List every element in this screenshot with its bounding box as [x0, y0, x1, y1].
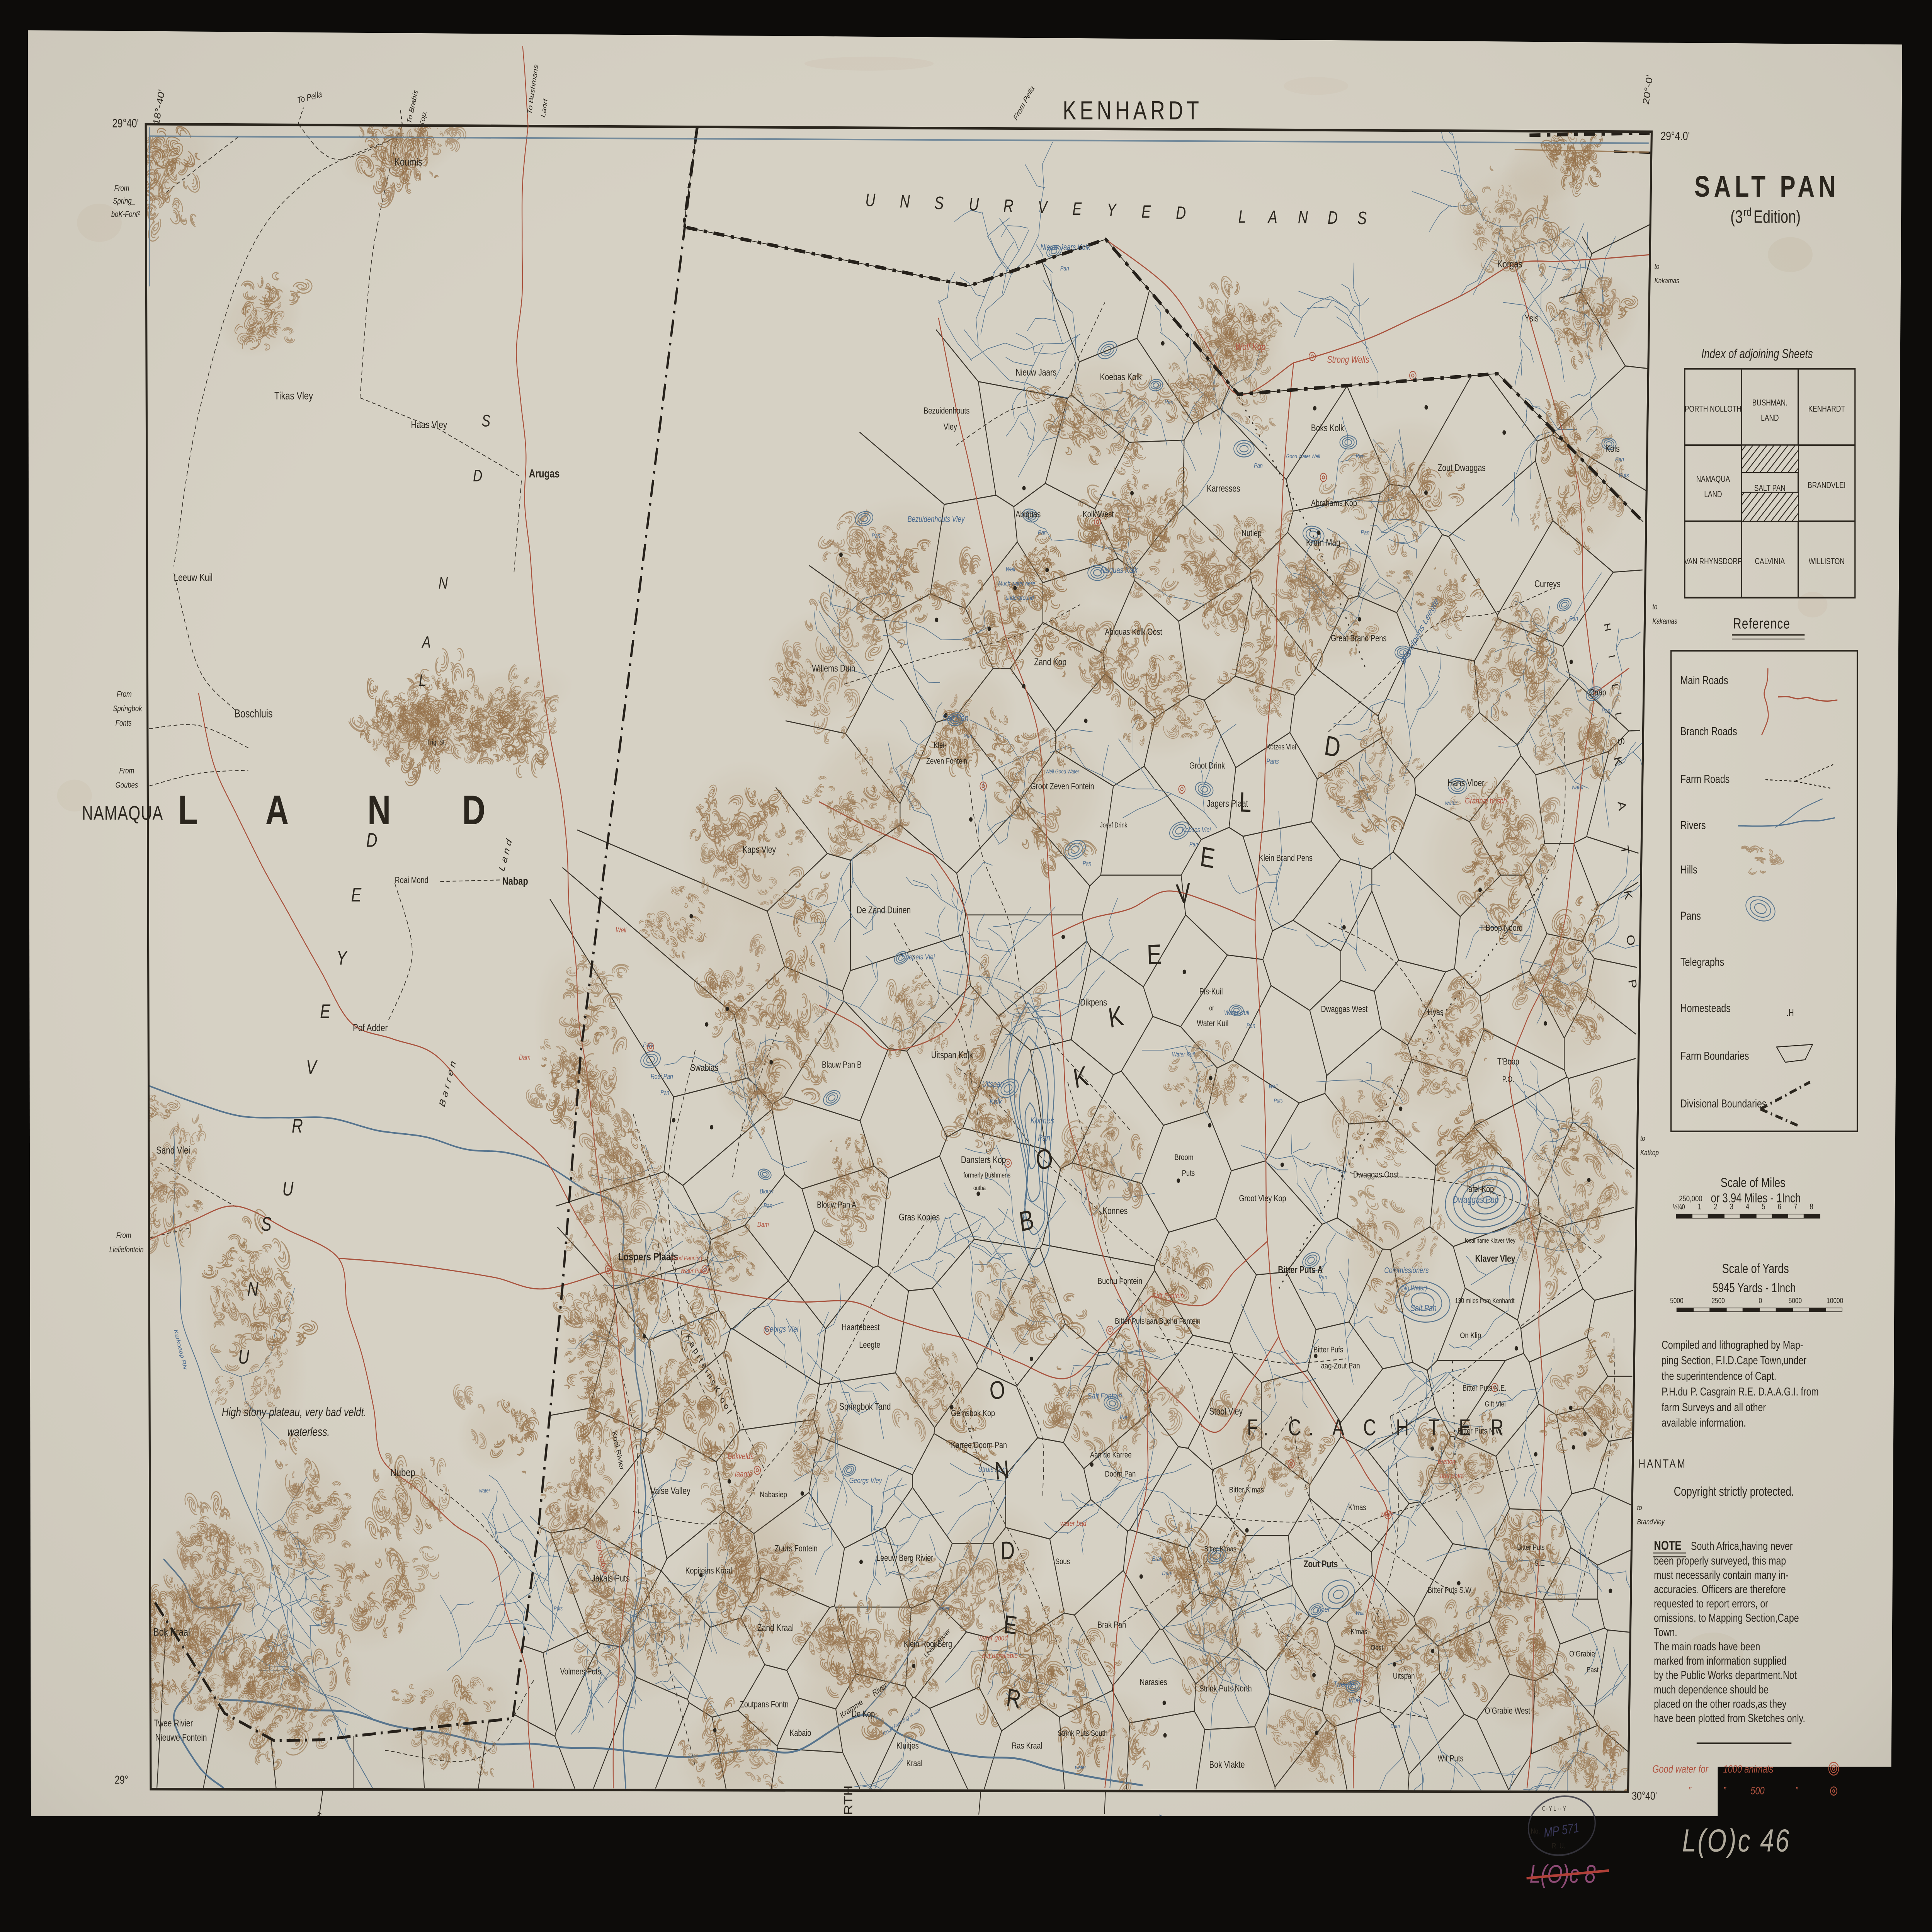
svg-text:From: From: [119, 766, 134, 775]
svg-text:much dependence should be: much dependence should be: [1654, 1683, 1769, 1696]
svg-text:E: E: [351, 884, 362, 906]
svg-text:Salt Pan: Salt Pan: [942, 713, 969, 723]
svg-text:Ysis: Ysis: [1525, 313, 1539, 324]
svg-text:to: to: [1655, 262, 1660, 270]
svg-text:D: D: [1000, 1536, 1015, 1565]
svg-text:D: D: [462, 787, 485, 833]
svg-text:Karree Doorn Pan: Karree Doorn Pan: [951, 1440, 1007, 1450]
svg-text:L: L: [1238, 207, 1246, 226]
svg-text:Bitter Puts N.E.: Bitter Puts N.E.: [1463, 1384, 1507, 1393]
svg-text:29°4.0': 29°4.0': [1661, 129, 1690, 143]
svg-text:Pan: Pan: [764, 1202, 772, 1209]
svg-text:the superintendence of Capt.: the superintendence of Capt.: [1662, 1369, 1776, 1382]
svg-text:Strink Puts North: Strink Puts North: [1199, 1684, 1252, 1694]
svg-text:HANTAM: HANTAM: [1638, 1457, 1686, 1471]
svg-text:Boks Kolk: Boks Kolk: [1311, 423, 1344, 434]
svg-text:oan be travelled over in a car: oan be travelled over in a cart: [1181, 1870, 1293, 1882]
svg-text:LAND: LAND: [1704, 490, 1722, 500]
svg-text:Onap: Onap: [1589, 687, 1606, 697]
svg-text:F. C. NORTH: F. C. NORTH: [842, 1785, 855, 1871]
svg-text:Wolf Kop: Wolf Kop: [1235, 342, 1265, 352]
svg-text:Sous: Sous: [1055, 1557, 1070, 1566]
svg-text:Pan: Pan: [1120, 1414, 1129, 1421]
svg-text:BRANDVLEI: BRANDVLEI: [1808, 481, 1845, 490]
svg-text:Vley: Vley: [944, 422, 957, 432]
svg-text:en: en: [968, 1426, 975, 1434]
svg-text:Springbok Tand: Springbok Tand: [839, 1401, 891, 1412]
svg-text:Rivers: Rivers: [1680, 819, 1706, 832]
svg-text:Kraal: Kraal: [906, 1759, 922, 1769]
svg-text:K’mas: K’mas: [1351, 1627, 1367, 1636]
svg-text:Pan: Pan: [1060, 265, 1069, 272]
svg-text:5: 5: [1762, 1202, 1765, 1211]
svg-text:water: water: [479, 1487, 490, 1494]
svg-text:N: N: [439, 574, 448, 593]
svg-text:Zand Kop: Zand Kop: [1034, 656, 1066, 667]
svg-text:E: E: [320, 1000, 330, 1022]
svg-text:U: U: [238, 1346, 250, 1368]
svg-text:5000: 5000: [1670, 1296, 1683, 1305]
svg-text:Oost: Oost: [1371, 1643, 1383, 1651]
svg-text:D: D: [473, 466, 482, 485]
svg-text:Dwaggas West: Dwaggas West: [1321, 1004, 1368, 1014]
svg-text:E: E: [1141, 202, 1151, 221]
svg-text:KENHARDT: KENHARDT: [1063, 96, 1202, 125]
svg-text:Bitter Puts: Bitter Puts: [1517, 1543, 1544, 1551]
svg-text:130 miles from Kenhardt: 130 miles from Kenhardt: [1455, 1297, 1515, 1305]
svg-text:1000 animals: 1000 animals: [1723, 1763, 1774, 1775]
svg-text:Fonts: Fonts: [116, 719, 132, 728]
svg-text:Kabaio: Kabaio: [789, 1728, 811, 1738]
svg-text:S: S: [482, 412, 491, 430]
svg-text:Jakals Puts: Jakals Puts: [592, 1573, 629, 1584]
svg-text:Nutiep: Nutiep: [1242, 529, 1262, 539]
svg-text:or 3.94 Miles - 1Inch: or 3.94 Miles - 1Inch: [1711, 1191, 1801, 1206]
svg-text:SALT PAN: SALT PAN: [1754, 484, 1786, 493]
svg-text:2: 2: [1714, 1202, 1717, 1211]
svg-text:T’Boop: T’Boop: [1497, 1057, 1519, 1067]
svg-text:SALT PAN: SALT PAN: [1694, 170, 1839, 203]
svg-text:.H: .H: [1786, 1007, 1794, 1018]
svg-text:Y: Y: [337, 947, 348, 969]
svg-text:S: S: [261, 1213, 272, 1235]
svg-text:Zoutpans Fontn: Zoutpans Fontn: [740, 1699, 789, 1709]
svg-text:Pans: Pans: [1680, 909, 1701, 922]
svg-text:Georgs Vlei: Georgs Vlei: [765, 1325, 799, 1334]
svg-text:Kotzes Vlei: Kotzes Vlei: [1266, 743, 1296, 751]
svg-text:N: N: [1298, 207, 1308, 227]
svg-text:A: A: [265, 787, 289, 833]
svg-text:S.E.: S.E.: [1534, 1559, 1546, 1567]
svg-text:Leeuw Kuil: Leeuw Kuil: [174, 572, 213, 583]
svg-text:Farm Boundaries: Farm Boundaries: [1680, 1049, 1749, 1062]
svg-text:NAMAQUA: NAMAQUA: [82, 802, 163, 824]
svg-text:Good Water Well: Good Water Well: [1286, 453, 1320, 460]
svg-text:Telegraphs: Telegraphs: [1680, 956, 1724, 968]
svg-text:From: From: [117, 690, 132, 699]
svg-text:Bitter Pufs: Bitter Pufs: [1313, 1345, 1343, 1354]
svg-text:Nabasiep: Nabasiep: [760, 1490, 787, 1499]
svg-text:Groot Vley Kop: Groot Vley Kop: [1239, 1194, 1286, 1204]
svg-text:local name Klaver Vley: local name Klaver Vley: [1465, 1238, 1515, 1245]
svg-text:Pof Adder: Pof Adder: [353, 1022, 388, 1034]
svg-text:Copyright strictly protected.: Copyright strictly protected.: [1674, 1485, 1794, 1499]
svg-text:D: D: [366, 829, 378, 851]
svg-text:underground: underground: [1005, 595, 1034, 602]
svg-text:Main Roads: Main Roads: [1680, 674, 1728, 687]
svg-text:Bitter Puts A: Bitter Puts A: [1278, 1264, 1323, 1275]
svg-text:8: 8: [1810, 1202, 1813, 1211]
svg-text:Water Kuil: Water Kuil: [1172, 1051, 1195, 1058]
svg-text:P.O.: P.O.: [1502, 1075, 1514, 1084]
svg-text:to: to: [1640, 1134, 1645, 1143]
svg-text:BUSHMAN.: BUSHMAN.: [1752, 398, 1788, 408]
svg-text:Swabias: Swabias: [690, 1062, 718, 1073]
svg-text:On Klip: On Klip: [1460, 1331, 1481, 1340]
svg-text:P.H.du P. Casgrain R.E. D.A.A.: P.H.du P. Casgrain R.E. D.A.A.G.I. from: [1662, 1385, 1819, 1398]
svg-text:E: E: [1072, 199, 1082, 219]
svg-text:Zuurs Fontein: Zuurs Fontein: [775, 1544, 818, 1554]
svg-text:Leegte: Leegte: [859, 1340, 880, 1350]
svg-text:water: water: [1075, 1764, 1086, 1771]
svg-text:but unreliable: but unreliable: [982, 1651, 1018, 1660]
svg-text:East: East: [1587, 1665, 1599, 1674]
svg-text:outba: outba: [973, 1185, 986, 1192]
svg-text:aag-Zout Pan: aag-Zout Pan: [1321, 1362, 1360, 1371]
svg-text:2500: 2500: [1712, 1296, 1725, 1305]
svg-text:From: From: [116, 1231, 131, 1240]
svg-text:1: 1: [1698, 1202, 1701, 1211]
svg-text:Koebas Kolk: Koebas Kolk: [1100, 372, 1142, 383]
svg-text:Salt Fontein: Salt Fontein: [1152, 1291, 1184, 1300]
svg-text:Abrahams Kop: Abrahams Kop: [1311, 498, 1357, 508]
svg-text:Good Panning: Good Panning: [670, 1255, 702, 1262]
svg-text:BrandVley: BrandVley: [1637, 1517, 1665, 1526]
svg-text:Bezuidenhouts: Bezuidenhouts: [923, 406, 969, 416]
svg-text:Puts: Puts: [1274, 1097, 1282, 1104]
svg-text:R: R: [292, 1115, 303, 1137]
svg-text:Pan: Pan: [660, 1090, 669, 1097]
svg-text:Vloer: Vloer: [1316, 1605, 1330, 1614]
svg-text:0: 0: [1759, 1296, 1762, 1305]
svg-text:Kopiteins Kraal: Kopiteins Kraal: [685, 1566, 732, 1576]
svg-text:Puts: Puts: [554, 1605, 563, 1612]
svg-text:Pan: Pan: [1318, 1274, 1327, 1281]
svg-text:Scale of Miles: Scale of Miles: [1721, 1175, 1786, 1190]
svg-text:N: N: [900, 192, 910, 211]
svg-text:Pan: Pan: [1189, 841, 1198, 848]
svg-text:R. U.: R. U.: [1552, 1842, 1565, 1850]
svg-text:Pan: Pan: [1165, 399, 1173, 406]
svg-text:Dwaggas Oost: Dwaggas Oost: [1353, 1170, 1399, 1180]
svg-text:Gemsbok Kop: Gemsbok Kop: [951, 1408, 995, 1418]
svg-text:29°: 29°: [115, 1773, 128, 1786]
svg-text:Vaise Valley: Vaise Valley: [651, 1485, 691, 1496]
svg-text:water bad: water bad: [1060, 1519, 1087, 1527]
svg-text:Nieuw Jaars Kolk: Nieuw Jaars Kolk: [1040, 243, 1090, 252]
svg-text:Puts: Puts: [1182, 1169, 1195, 1178]
svg-text:Bitter Puts aan Buchu Fontein: Bitter Puts aan Buchu Fontein: [1115, 1317, 1201, 1326]
svg-text:Puts: Puts: [1619, 472, 1629, 479]
svg-text:Pan: Pan: [1356, 453, 1365, 460]
svg-text:Homesteads: Homesteads: [1680, 1002, 1731, 1014]
svg-text:Commissioners: Commissioners: [1384, 1266, 1429, 1275]
svg-text:D: D: [1176, 203, 1186, 223]
svg-text:Blauw Pan B: Blauw Pan B: [822, 1060, 862, 1070]
svg-text:bad water: bad water: [1440, 1472, 1464, 1480]
svg-text:Springbok: Springbok: [113, 704, 142, 713]
svg-text:Blouw Pan A: Blouw Pan A: [817, 1200, 856, 1210]
svg-text:N: N: [247, 1278, 259, 1300]
svg-text:Well: Well: [1356, 1610, 1365, 1616]
svg-text:Well: Well: [1005, 566, 1015, 573]
svg-text:wells: wells: [1381, 1510, 1394, 1518]
svg-text:Abiquas Kolk Oost: Abiquas Kolk Oost: [1105, 627, 1162, 637]
svg-text:Roai Pan: Roai Pan: [651, 1073, 673, 1080]
svg-text:Volmers Puts: Volmers Puts: [560, 1667, 601, 1677]
svg-text:Well: Well: [616, 927, 627, 934]
svg-text:LAND: LAND: [1761, 413, 1779, 423]
svg-text:U: U: [865, 190, 876, 210]
svg-text:boK-Font²: boK-Font²: [111, 210, 140, 219]
svg-text:Farm Roads: Farm Roads: [1680, 772, 1730, 785]
svg-text:The main roads have been: The main roads have been: [1654, 1640, 1760, 1653]
svg-text:From: From: [114, 184, 129, 193]
svg-text:Boschluis: Boschluis: [235, 707, 273, 720]
svg-text:Reference: Reference: [1733, 616, 1790, 632]
svg-text:Kaps Vley: Kaps Vley: [742, 844, 776, 855]
svg-text:S: S: [1357, 208, 1367, 228]
svg-text:Lospers Plaats: Lospers Plaats: [618, 1251, 678, 1263]
svg-text:Trig. St.: Trig. St.: [427, 739, 446, 747]
svg-text:been properly surveyed, this m: been properly surveyed, this map: [1654, 1554, 1786, 1567]
svg-text:Groot Zeven Fontein: Groot Zeven Fontein: [1031, 781, 1094, 791]
svg-text:Bitter K’mas: Bitter K’mas: [1229, 1486, 1264, 1495]
svg-text:PORTH NOLLOTH: PORTH NOLLOTH: [1685, 404, 1742, 414]
svg-text:Salt Pan: Salt Pan: [1410, 1303, 1437, 1313]
svg-text:Edition): Edition): [1753, 207, 1801, 226]
svg-text:Abiquas: Abiquas: [1015, 509, 1041, 519]
svg-text:Vloer: Vloer: [1348, 1696, 1362, 1704]
svg-text:to: to: [1652, 602, 1657, 611]
svg-text:South Africa,having never: South Africa,having never: [1691, 1539, 1793, 1552]
svg-text:Dam: Dam: [757, 1221, 769, 1228]
svg-text:Pan: Pan: [871, 532, 880, 539]
svg-text:5945 Yards - 1Inch: 5945 Yards - 1Inch: [1713, 1281, 1796, 1295]
svg-text:Great Brand Pens: Great Brand Pens: [1331, 633, 1386, 643]
svg-text:requested to report errors, or: requested to report errors, or: [1654, 1597, 1768, 1610]
svg-text:Much water here: Much water here: [998, 580, 1035, 587]
svg-text:Haas Vley: Haas Vley: [411, 419, 447, 430]
svg-text:Aan de Karree: Aan de Karree: [1090, 1451, 1132, 1459]
svg-text:Kolk West: Kolk West: [1083, 509, 1114, 519]
svg-text:Karresses: Karresses: [1207, 483, 1240, 494]
svg-text:10000: 10000: [1827, 1296, 1843, 1305]
svg-text:Nieuw Jaars: Nieuw Jaars: [1015, 367, 1056, 378]
svg-text:Zeven Fontein: Zeven Fontein: [926, 757, 968, 766]
svg-text:29°40': 29°40': [112, 117, 139, 130]
svg-text:K’mas: K’mas: [1348, 1503, 1366, 1512]
svg-text:(No Water): (No Water): [1400, 1284, 1427, 1292]
svg-text:available information.: available information.: [1662, 1416, 1746, 1429]
svg-text:No.: No.: [1531, 1827, 1540, 1835]
svg-text:Buchu Fontein: Buchu Fontein: [1097, 1276, 1142, 1286]
svg-text:Pan: Pan: [1038, 529, 1047, 536]
svg-text:Kakamas: Kakamas: [1652, 617, 1677, 625]
svg-text:Haartebeest: Haartebeest: [842, 1323, 879, 1333]
svg-text:Hills: Hills: [1680, 863, 1697, 876]
svg-text:Narasies: Narasies: [1139, 1677, 1167, 1687]
svg-text:Konnes: Konnes: [1102, 1206, 1128, 1216]
svg-text:D: D: [1328, 208, 1338, 228]
svg-text:Groot Drink: Groot Drink: [1189, 761, 1225, 771]
svg-text:O’Grabie: O’Grabie: [1569, 1650, 1595, 1658]
svg-text:Nieuwe Fontein: Nieuwe Fontein: [155, 1732, 207, 1743]
svg-text:or: or: [1209, 1004, 1214, 1012]
svg-text:Kobses Vlei: Kobses Vlei: [1182, 826, 1211, 834]
svg-text:Bitter Puts S.W.: Bitter Puts S.W.: [1428, 1586, 1473, 1595]
svg-text:water: water: [1572, 784, 1584, 791]
svg-text:Pan: Pan: [1083, 861, 1092, 867]
svg-text:Twee Rivier: Twee Rivier: [154, 1718, 193, 1729]
svg-text:Pan: Pan: [1615, 456, 1624, 463]
svg-text:Dam: Dam: [603, 1643, 612, 1650]
svg-text:Konnes: Konnes: [1031, 1116, 1054, 1126]
svg-text:Well Good Water: Well Good Water: [1045, 768, 1079, 775]
svg-text:Uitspan: Uitspan: [1393, 1672, 1415, 1681]
svg-text:Goubes: Goubes: [116, 781, 138, 790]
svg-text:Water Puts: Water Puts: [680, 1268, 705, 1275]
svg-text:Klein Rooi Berg: Klein Rooi Berg: [904, 1639, 952, 1649]
svg-text:Sand Vlei: Sand Vlei: [156, 1145, 190, 1156]
svg-text:A: A: [1267, 207, 1277, 227]
svg-text:U: U: [282, 1178, 294, 1200]
svg-text:Roai Mond: Roai Mond: [395, 875, 429, 885]
svg-text:Y: Y: [1107, 200, 1117, 220]
svg-text:Tweede: Tweede: [1333, 1680, 1354, 1688]
svg-text:A: A: [422, 633, 431, 651]
svg-text:Curreys: Curreys: [1534, 578, 1560, 589]
svg-text:V: V: [306, 1056, 318, 1078]
svg-text:Pis-Kuil: Pis-Kuil: [1199, 987, 1223, 997]
svg-text:Well: Well: [1269, 1083, 1278, 1090]
svg-text:water: water: [939, 1605, 950, 1612]
svg-text:Abiquas Kolk: Abiquas Kolk: [1100, 566, 1138, 575]
svg-text:N: N: [993, 1455, 1010, 1485]
svg-text:Bretton-: Bretton-: [1438, 1458, 1458, 1466]
svg-text:E: E: [1146, 938, 1162, 970]
svg-text:Bitter K’mas: Bitter K’mas: [1204, 1544, 1236, 1553]
svg-text:Water Kuil: Water Kuil: [1197, 1019, 1228, 1029]
svg-text:Bok Vlakte: Bok Vlakte: [1209, 1759, 1245, 1770]
svg-text:30°40': 30°40': [1632, 1789, 1657, 1802]
svg-text:Bokvelds: Bokvelds: [728, 1452, 754, 1461]
svg-text:Scale of Yards: Scale of Yards: [1722, 1261, 1789, 1276]
svg-text:Nabap: Nabap: [502, 875, 528, 887]
svg-text:Divisional Boundaries: Divisional Boundaries: [1680, 1097, 1766, 1110]
svg-text:Dam: Dam: [1162, 1570, 1172, 1577]
svg-text:L(O)c 46: L(O)c 46: [1682, 1823, 1791, 1859]
svg-text:U: U: [969, 194, 979, 214]
svg-text:WILLISTON: WILLISTON: [1809, 557, 1845, 566]
svg-text:Hans Vloer: Hans Vloer: [1447, 777, 1484, 788]
svg-text:E: E: [1003, 1610, 1018, 1640]
svg-text:waterless.: waterless.: [287, 1425, 330, 1439]
svg-text:High stony plateau, very bad v: High stony plateau, very bad veldt.: [222, 1405, 366, 1419]
svg-text:Pan: Pan: [1569, 616, 1578, 622]
svg-text:T’Boop Noord: T’Boop Noord: [1480, 923, 1523, 933]
svg-text:R: R: [1003, 196, 1014, 216]
svg-text:Brak: Brak: [1152, 1556, 1163, 1563]
svg-text:Stool Vley: Stool Vley: [1209, 1406, 1243, 1417]
svg-text:V: V: [1038, 197, 1048, 217]
svg-text:Gift Vlei: Gift Vlei: [1485, 1400, 1506, 1408]
svg-text:Uitspan Kolk: Uitspan Kolk: [931, 1049, 973, 1060]
svg-text:ping Section, F.I.D.Cape Town,: ping Section, F.I.D.Cape Town,under: [1662, 1354, 1806, 1367]
svg-text:Zand Kraal: Zand Kraal: [757, 1622, 794, 1633]
svg-text:Hoepels Vlei: Hoepels Vlei: [901, 952, 935, 961]
svg-text:Doorn Pan: Doorn Pan: [1105, 1470, 1136, 1479]
svg-text:omissions, to Mapping Section,: omissions, to Mapping Section,Cape: [1654, 1611, 1799, 1624]
svg-text:Pan: Pan: [1247, 1023, 1255, 1030]
svg-text:Strong Wells: Strong Wells: [1327, 354, 1369, 365]
svg-text:Leeuw Berg Rivier: Leeuw Berg Rivier: [876, 1553, 933, 1563]
svg-text:Pan: Pan: [1361, 529, 1369, 536]
svg-text:Willems Duin: Willems Duin: [812, 663, 855, 673]
svg-text:Water Kuil: Water Kuil: [1224, 1009, 1249, 1017]
svg-text:Pan: Pan: [963, 733, 972, 740]
svg-text:to: to: [1637, 1503, 1642, 1512]
svg-text:N: N: [367, 787, 391, 833]
svg-text:KENHARDT: KENHARDT: [1808, 404, 1845, 414]
svg-text:Brak Pan: Brak Pan: [1097, 1620, 1126, 1630]
svg-text:by the Public Works department: by the Public Works department.Not: [1654, 1668, 1797, 1681]
svg-text:Dam: Dam: [1391, 1723, 1400, 1730]
svg-text:Bok Kraal: Bok Kraal: [153, 1626, 190, 1638]
svg-text:Krom Mag: Krom Mag: [1306, 537, 1340, 548]
svg-text:The country is undulating and: The country is undulating and the whole …: [1181, 1841, 1422, 1853]
svg-text:Zout Dwaggas: Zout Dwaggas: [1438, 463, 1486, 473]
svg-text:Tafel Kop: Tafel Kop: [1465, 1184, 1494, 1194]
svg-text:Blouw: Blouw: [760, 1188, 774, 1195]
svg-text:Kois: Kois: [1605, 443, 1619, 454]
svg-text:Pan: Pan: [1602, 707, 1611, 714]
svg-text:must necessarily contain many: must necessarily contain many in-: [1654, 1568, 1788, 1581]
svg-text:Ras Kraal: Ras Kraal: [1012, 1741, 1043, 1751]
svg-text:Kluitjes: Kluitjes: [896, 1741, 919, 1751]
svg-text:Good water for: Good water for: [1652, 1763, 1709, 1775]
svg-text:Water when not found on surfac: Water when not found on surface may freq…: [1182, 1816, 1427, 1827]
svg-text:Tikas Vley: Tikas Vley: [274, 390, 313, 402]
svg-text:NAMAQUA: NAMAQUA: [1696, 474, 1730, 484]
svg-text:Index of adjoining Sheets: Index of adjoining Sheets: [1701, 347, 1813, 361]
svg-text:V: V: [1175, 877, 1192, 910]
svg-text:Bezuidenhouts Vley: Bezuidenhouts Vley: [908, 515, 965, 524]
svg-text:Broom: Broom: [1174, 1153, 1193, 1162]
svg-text:rd: rd: [1743, 206, 1752, 218]
svg-text:Zout Puts: Zout Puts: [1304, 1559, 1338, 1570]
svg-text:Dwaggas Pan: Dwaggas Pan: [1452, 1194, 1499, 1205]
svg-text:Korgas: Korgas: [1497, 259, 1522, 270]
svg-text:Kakamas: Kakamas: [1655, 276, 1679, 285]
svg-text:have been plotted from Sketche: have been plotted from Sketches only.: [1654, 1712, 1805, 1725]
svg-text:NOTE: NOTE: [1654, 1539, 1681, 1553]
svg-text:Spring_: Spring_: [113, 197, 135, 206]
svg-text:5000: 5000: [1789, 1296, 1802, 1305]
svg-text:Katkop: Katkop: [1640, 1148, 1659, 1157]
svg-text:L: L: [178, 787, 198, 833]
svg-text:Pans: Pans: [1266, 758, 1279, 765]
